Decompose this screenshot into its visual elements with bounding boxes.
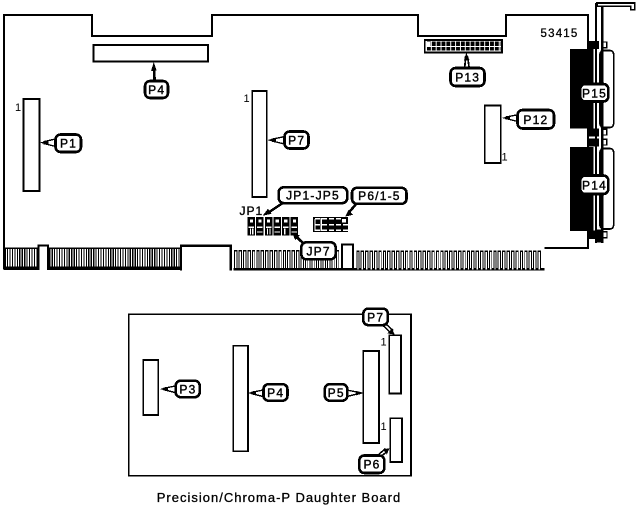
svg-text:JP7: JP7 [306,244,330,258]
svg-text:1: 1 [15,102,21,114]
svg-text:Precision/Chroma-P Daughter Bo: Precision/Chroma-P Daughter Board [157,490,401,505]
svg-text:P15: P15 [582,86,607,100]
svg-text:1: 1 [244,93,250,105]
svg-text:1: 1 [381,337,387,349]
svg-text:JP1: JP1 [240,204,264,218]
svg-text:P1: P1 [60,137,77,151]
svg-text:1: 1 [381,421,387,433]
svg-text:P12: P12 [523,113,548,127]
svg-text:JP1-JP5: JP1-JP5 [286,189,340,203]
svg-text:P13: P13 [455,71,480,85]
svg-text:P6/1-5: P6/1-5 [358,189,401,203]
svg-text:P7: P7 [367,310,384,324]
svg-text:53415: 53415 [541,28,579,40]
svg-text:P4: P4 [267,386,284,400]
svg-text:1: 1 [502,152,508,164]
svg-text:P7: P7 [288,134,305,148]
svg-text:P6: P6 [363,458,380,472]
svg-text:P5: P5 [328,386,345,400]
svg-text:P4: P4 [148,83,165,97]
svg-text:P14: P14 [582,178,607,192]
svg-text:P3: P3 [179,383,196,397]
